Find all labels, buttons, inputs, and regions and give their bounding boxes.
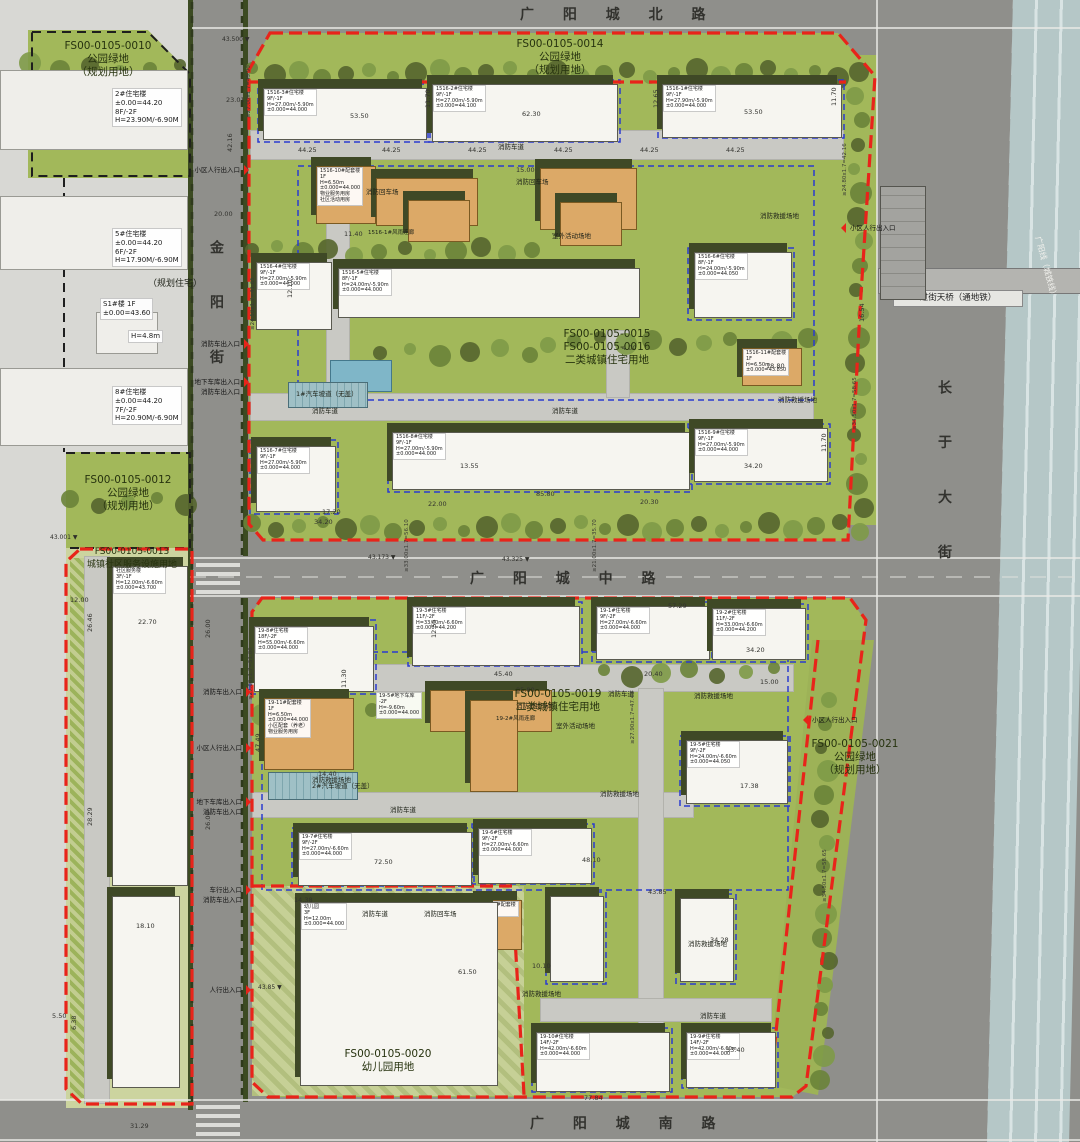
dim-label: 14.38 bbox=[294, 896, 313, 904]
site-text: 消防回车场 bbox=[366, 186, 399, 196]
dim-label: 12.10 bbox=[286, 279, 294, 298]
dim-label: 15.00 bbox=[760, 678, 779, 686]
building: 1516-5#住宅楼8F/-1FH=24.00m/-5.90m±0.000=44… bbox=[338, 268, 640, 318]
dim-label: 28.29 bbox=[86, 807, 94, 826]
dim-label: 17.20 bbox=[322, 508, 341, 516]
building: 19-1#住宅楼9F/-2FH=27.00m/-6.60m±0.000=44.0… bbox=[596, 606, 710, 660]
building-label: 1516-8#住宅楼9F/-1FH=27.00m/-5.90m±0.000=44… bbox=[393, 433, 446, 460]
dim-label: 11.70 bbox=[830, 87, 838, 106]
site-text: （规划住宅） bbox=[148, 276, 202, 289]
building-label: 1516-9#住宅楼9F/-1FH=27.00m/-5.90m±0.000=44… bbox=[695, 429, 748, 456]
dim-label: 16.54 bbox=[858, 303, 866, 322]
building-label: 1516-5#住宅楼8F/-1FH=24.00m/-5.90m±0.000=44… bbox=[339, 269, 392, 296]
building-label: 19-6#住宅楼9F/-2FH=27.00m/-6.60m±0.000=44.0… bbox=[479, 829, 532, 856]
site-text: 消防回车场 bbox=[516, 176, 549, 186]
dim-label: 20.00 bbox=[214, 210, 233, 218]
elevation-marker: 43.001 ▼ bbox=[50, 534, 78, 541]
entrance-arrow-icon bbox=[246, 687, 256, 697]
entrance-label: 地下车库出入口消防车出入口 bbox=[197, 796, 243, 816]
dim-label: 15.00 bbox=[516, 166, 535, 174]
dim-label: 22.70 bbox=[138, 618, 157, 626]
building: 19-8#住宅楼18F/-2FH=55.00m/-6.60m±0.000=44.… bbox=[254, 626, 374, 692]
slope-annotation: ≥27.90x1.7=47.43 bbox=[630, 691, 636, 744]
building-label: 19-11#配套楼1FH=6.50m±0.000=44.000小区配套（养老）物… bbox=[265, 699, 311, 738]
dim-label: 12.65 bbox=[652, 89, 660, 108]
site-text: 消防救援场地 bbox=[600, 788, 639, 798]
building-label: 19-5#住宅楼9F/-2FH=24.00m/-6.60m±0.000=44.0… bbox=[687, 741, 740, 768]
dim-label: 6.38 bbox=[70, 1016, 78, 1030]
dim-label: 77.84 bbox=[584, 1094, 603, 1102]
entrance-arrow-icon bbox=[836, 223, 846, 233]
dim-label: 44.25 bbox=[554, 146, 573, 154]
building-label: 1516-10#配套楼1FH=6.50m±0.000=44.000物业服务用房社… bbox=[317, 167, 363, 206]
entrance-arrow-icon bbox=[244, 165, 254, 175]
dim-label: 18.10 bbox=[136, 922, 155, 930]
dim-label: 72.50 bbox=[374, 858, 393, 866]
dim-label: 13.55 bbox=[460, 462, 479, 470]
site-text: 室外活动场地 bbox=[556, 720, 595, 730]
dim-label: 22.00 bbox=[428, 500, 447, 508]
dim-label: 43.85 bbox=[648, 888, 667, 896]
dim-label: 34.20 bbox=[314, 518, 333, 526]
road-name-north: 广 阳 城 北 路 bbox=[520, 4, 718, 24]
dim-label: 53.50 bbox=[744, 108, 763, 116]
dim-label: 31.29 bbox=[130, 1122, 149, 1130]
building-label: 1516-7#住宅楼9F/-1FH=27.00m/-5.90m±0.000=44… bbox=[257, 447, 310, 474]
building-label: 19-3#住宅楼11F/-2FH=33.00m/-6.60m±0.000=44.… bbox=[413, 607, 466, 634]
road-name-south: 广 阳 城 南 路 bbox=[530, 1113, 728, 1133]
info-box: H=4.8m bbox=[128, 330, 163, 343]
dim-label: 48.10 bbox=[582, 856, 601, 864]
entrance-arrow-icon bbox=[246, 885, 256, 895]
parcel-label: FS00-0105-0020幼儿园用地 bbox=[345, 1048, 432, 1074]
dim-label: 11.70 bbox=[424, 89, 432, 108]
building-label: 19-8#住宅楼18F/-2FH=55.00m/-6.60m±0.000=44.… bbox=[255, 627, 308, 654]
site-text: 1#汽车坡道（无盖） bbox=[296, 388, 358, 398]
site-text: 消防回车场 bbox=[424, 908, 457, 918]
entrance-label: 小区人行出入口 bbox=[850, 222, 896, 232]
dim-label: 5.50 bbox=[52, 1012, 66, 1020]
dim-label: 23.01 bbox=[226, 96, 245, 104]
building: 1516-3#住宅楼9F/-1FH=27.00m/-5.90m±0.000=44… bbox=[263, 88, 427, 140]
entrance-arrow-icon bbox=[246, 743, 256, 753]
dim-label: 34.20 bbox=[744, 462, 763, 470]
dim-label: 61.50 bbox=[458, 968, 477, 976]
dim-label: 26.00 bbox=[204, 619, 212, 638]
dim-label: 33.40 bbox=[726, 1046, 745, 1054]
info-box: 5#住宅楼±0.00=44.206F/-2FH=17.90M/-6.90M bbox=[112, 228, 182, 267]
dim-label: 44.25 bbox=[382, 146, 401, 154]
dim-label: 11.70 bbox=[820, 433, 828, 452]
entrance-arrow-icon bbox=[798, 715, 808, 725]
elevation-marker: 43.325 ▼ bbox=[502, 556, 530, 563]
building: 1516-8#住宅楼9F/-1FH=27.00m/-5.90m±0.000=44… bbox=[392, 432, 690, 490]
entrance-arrow-icon bbox=[244, 377, 254, 387]
entrance-label: 人行出入口 bbox=[210, 984, 243, 994]
dim-label: 44.25 bbox=[298, 146, 317, 154]
parcel-label: FS00-0105-0010公园绿地（规划用地） bbox=[65, 40, 152, 79]
parcel-label: FS00-0105-0021公园绿地（规划用地） bbox=[812, 738, 899, 777]
elevation-marker: 43.173 ▼ bbox=[368, 554, 396, 561]
building: 19-10#住宅楼14F/-2FH=42.00m/-6.60m±0.000=44… bbox=[536, 1032, 670, 1092]
building-label: 19-2#住宅楼11F/-2FH=33.00m/-6.60m±0.000=44.… bbox=[713, 609, 766, 636]
building-label: 幼儿园3FH=12.00m±0.000=44.000 bbox=[301, 903, 347, 930]
entrance-label: 小区人行出入口 bbox=[197, 742, 243, 752]
dim-label: 18.80 bbox=[766, 362, 785, 370]
dim-label: 62.30 bbox=[522, 110, 541, 118]
parcel-label: FS00-0105-0012公园绿地（规划用地） bbox=[85, 474, 172, 513]
site-plan: 1516-3#住宅楼9F/-1FH=27.00m/-5.90m±0.000=44… bbox=[0, 0, 1080, 1142]
road-name-middle: 广 阳 城 中 路 bbox=[470, 568, 668, 588]
slope-annotation: ≥24.50x1.7=41.65 bbox=[250, 277, 256, 330]
site-text: 消防车道 bbox=[312, 405, 338, 415]
dim-label: 11.40 bbox=[344, 230, 363, 238]
dim-label: 11.30 bbox=[340, 669, 348, 688]
building bbox=[880, 186, 926, 300]
site-text: 消防救援场地 bbox=[778, 394, 817, 404]
parcel-label: FS00-0105-0019二类城镇住宅用地 bbox=[515, 688, 602, 714]
slope-annotation: ≥33.00x1.7=56.10 bbox=[404, 519, 410, 572]
building: 社区服务楼3F/-1FH=12.00m/-6.60m±0.000=43.700 bbox=[112, 566, 188, 886]
parcel-label: FS00-0105-0014公园绿地（规划用地） bbox=[517, 38, 604, 77]
site-text: 室外活动场地 bbox=[552, 230, 591, 240]
site-text: 19-2#风雨连廊 bbox=[496, 714, 535, 722]
building: 1516-7#住宅楼9F/-1FH=27.00m/-5.90m±0.000=44… bbox=[256, 446, 336, 512]
building-label: 1516-4#住宅楼9F/-1FH=27.00m/-5.90m±0.000=44… bbox=[257, 263, 310, 290]
site-text: 消防车道 bbox=[700, 1010, 726, 1020]
dim-label: 42.16 bbox=[226, 133, 234, 152]
building-label: 1516-2#住宅楼9F/-1FH=27.00m/-5.90m±0.000=44… bbox=[433, 85, 486, 112]
site-text: 1516-1#风雨连廊 bbox=[368, 228, 414, 236]
parcel-label: FS00-0105-0015FS00-0105-0016二类城镇住宅用地 bbox=[564, 328, 651, 367]
entrance-arrow-icon bbox=[246, 985, 256, 995]
elevation-marker: 43.500 ▼ bbox=[222, 36, 250, 43]
building: 1516-4#住宅楼9F/-1FH=27.00m/-5.90m±0.000=44… bbox=[256, 262, 332, 330]
site-text: 消防车道 bbox=[362, 908, 388, 918]
building bbox=[550, 896, 604, 982]
building-label: 19-10#住宅楼14F/-2FH=42.00m/-6.60m±0.000=44… bbox=[537, 1033, 590, 1060]
site-text: 2#汽车坡道（无盖） bbox=[312, 780, 374, 790]
dim-label: 45.40 bbox=[494, 670, 513, 678]
slope-annotation: ≥24.80x1.7=42.16 bbox=[842, 143, 848, 196]
dim-label: 34.20 bbox=[746, 646, 765, 654]
entrance-arrow-icon bbox=[246, 797, 256, 807]
info-box: 2#住宅楼±0.00=44.208F/-2FH=23.90M/-6.90M bbox=[112, 88, 182, 127]
dim-label: 85.80 bbox=[536, 490, 555, 498]
building-label: 1516-3#住宅楼9F/-1FH=27.00m/-5.90m±0.000=44… bbox=[264, 89, 317, 116]
site-text: 消防车道 bbox=[390, 804, 416, 814]
dim-label: 17.38 bbox=[740, 782, 759, 790]
slope-annotation: ≥27.00x1.7=45.90 bbox=[246, 65, 252, 118]
building: 19-11#配套楼1FH=6.50m±0.000=44.000小区配套（养老）物… bbox=[264, 698, 354, 770]
entrance-label: 车行出入口消防车出入口 bbox=[203, 884, 242, 904]
entrance-label: 小区人行出入口 bbox=[812, 714, 858, 724]
dim-label: 26.46 bbox=[86, 613, 94, 632]
info-box: 19-5#地下车库-2FH=-9.60m±0.000=44.000 bbox=[376, 692, 422, 719]
site-text: 消防救援场地 bbox=[522, 988, 561, 998]
dim-label: 44.25 bbox=[726, 146, 745, 154]
dim-label: 20.40 bbox=[644, 670, 663, 678]
site-text: 消防车道 bbox=[552, 405, 578, 415]
site-text: 消防救援场地 bbox=[760, 210, 799, 220]
dim-label: 12.55 bbox=[430, 619, 438, 638]
building: 19-9#住宅楼14F/-2FH=42.00m/-6.60m±0.000=44.… bbox=[686, 1032, 776, 1088]
dim-label: 44.25 bbox=[640, 146, 659, 154]
slope-annotation: ≥34.50x1.7=58.65 bbox=[822, 849, 828, 902]
dim-label: 20.30 bbox=[640, 498, 659, 506]
dim-label: 10.10 bbox=[532, 962, 551, 970]
slope-annotation: ≥34.50x1.7=58.65 bbox=[852, 377, 858, 430]
building: 1516-9#住宅楼9F/-1FH=27.00m/-5.90m±0.000=44… bbox=[694, 428, 828, 482]
info-box: S1#楼 1F±0.00=43.60 bbox=[100, 298, 153, 320]
road-name-west: 金 阳 街 bbox=[206, 240, 226, 382]
site-text: 消防救援场地 bbox=[688, 938, 727, 948]
building-label: 19-7#住宅楼9F/-2FH=27.00m/-6.60m±0.000=44.0… bbox=[299, 833, 352, 860]
site-text: 消防车道 bbox=[498, 141, 524, 151]
parcel-label: FS00-0105-0013城镇社区服务设施用地 bbox=[87, 546, 177, 572]
dim-label: 57.29 bbox=[668, 602, 687, 610]
building bbox=[408, 200, 470, 242]
dim-label: 53.50 bbox=[350, 112, 369, 120]
road-name-east: 长 于 大 街 bbox=[934, 380, 954, 577]
building: 1516-6#住宅楼8F/-1FH=24.00m/-5.90m±0.000=44… bbox=[694, 252, 792, 318]
entrance-arrow-icon bbox=[244, 339, 254, 349]
building-label: 1516-1#住宅楼9F/-1FH=27.90m/-5.90m±0.000=44… bbox=[663, 85, 716, 112]
building: 19-6#住宅楼9F/-2FH=27.00m/-6.60m±0.000=44.0… bbox=[478, 828, 592, 884]
info-box: 8#住宅楼±0.00=44.207F/-2FH=20.90M/-6.90M bbox=[112, 386, 182, 425]
building-label: 1516-6#住宅楼8F/-1FH=24.00m/-5.90m±0.000=44… bbox=[695, 253, 748, 280]
building: 19-5#住宅楼9F/-2FH=24.00m/-6.60m±0.000=44.0… bbox=[686, 740, 788, 804]
dim-label: 44.25 bbox=[468, 146, 487, 154]
building-label: 19-1#住宅楼9F/-2FH=27.00m/-6.60m±0.000=44.0… bbox=[597, 607, 650, 634]
elevation-marker: 43.85 ▼ bbox=[258, 984, 282, 991]
dim-label: 12.00 bbox=[70, 596, 89, 604]
entrance-label: 消防车出入口 bbox=[203, 686, 242, 696]
entrance-label: 小区人行出入口 bbox=[195, 164, 241, 174]
slope-annotation: ≥21.00x1.7=35.70 bbox=[592, 519, 598, 572]
site-text: 消防救援场地 bbox=[694, 690, 733, 700]
